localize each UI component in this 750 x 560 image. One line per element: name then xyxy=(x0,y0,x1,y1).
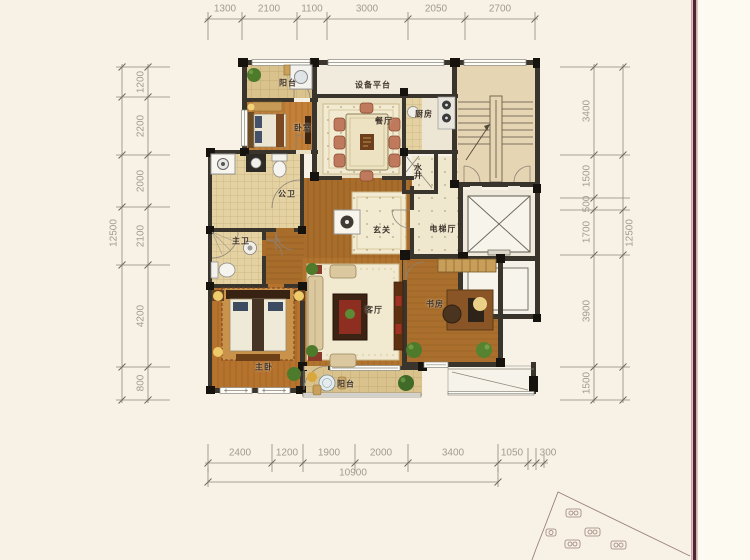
dim-bottom-1: 1200 xyxy=(276,448,298,459)
room-label-equipment-platform: 设备平台 xyxy=(355,80,391,91)
dim-right-5: 1500 xyxy=(582,372,593,394)
dim-bottom-2: 1900 xyxy=(318,448,340,459)
key-plan-wedge xyxy=(532,492,690,560)
room-label-living: 客厅 xyxy=(365,305,383,316)
room-label-public-bath: 公卫 xyxy=(278,189,296,200)
dim-top-0: 1300 xyxy=(214,4,236,15)
dim-right-3: 1700 xyxy=(582,221,593,243)
floor-plan-canvas: 阳台 设备平台 厨房 餐厅 卧室 水井 公卫 主卫 玄关 电梯厅 客厅 书房 主… xyxy=(0,0,750,560)
dim-top-1: 2100 xyxy=(258,4,280,15)
room-label-kitchen: 厨房 xyxy=(415,109,433,120)
page-edge xyxy=(691,0,750,560)
room-label-master-bath: 主卫 xyxy=(232,236,250,247)
dim-right-2: 500 xyxy=(582,196,593,213)
dim-bottom-3: 2000 xyxy=(370,448,392,459)
dim-left-0: 1200 xyxy=(136,71,147,93)
dim-top-3: 3000 xyxy=(356,4,378,15)
dim-left-4: 4200 xyxy=(136,305,147,327)
dim-top-4: 2050 xyxy=(425,4,447,15)
dim-right-1: 1500 xyxy=(582,165,593,187)
room-label-water-shaft: 水井 xyxy=(413,163,424,179)
dim-right-4: 3900 xyxy=(582,300,593,322)
dim-bottom-4: 3400 xyxy=(442,448,464,459)
room-label-dining: 餐厅 xyxy=(375,116,393,127)
dim-right-0: 3400 xyxy=(582,100,593,122)
dim-bottom-0: 2400 xyxy=(229,448,251,459)
dim-left-5: 800 xyxy=(136,375,147,392)
dim-left-2: 2000 xyxy=(136,170,147,192)
floor-plan-page: { "rooms": { "balcony_top": "阳台", "equip… xyxy=(0,0,750,560)
hall-cabinet xyxy=(334,210,360,234)
room-label-balcony-top: 阳台 xyxy=(279,78,297,89)
dim-bottom-5: 1050 xyxy=(501,448,523,459)
room-label-bedroom: 卧室 xyxy=(294,123,312,134)
dim-bottom-total: 10900 xyxy=(339,468,367,479)
dim-bottom-6: 300 xyxy=(540,448,557,459)
dim-top-5: 2700 xyxy=(489,4,511,15)
room-label-master-bedroom: 主卧 xyxy=(255,362,273,373)
dim-left-3: 2100 xyxy=(136,225,147,247)
dim-top-2: 1100 xyxy=(301,4,323,15)
dim-left-total: 12500 xyxy=(109,219,120,247)
dim-left-1: 2200 xyxy=(136,115,147,137)
room-label-study: 书房 xyxy=(426,299,444,310)
room-label-entry: 玄关 xyxy=(373,225,391,236)
room-label-elevator-hall: 电梯厅 xyxy=(430,224,457,235)
room-label-balcony-bottom: 阳台 xyxy=(337,379,355,390)
dim-right-total: 12500 xyxy=(625,219,636,247)
